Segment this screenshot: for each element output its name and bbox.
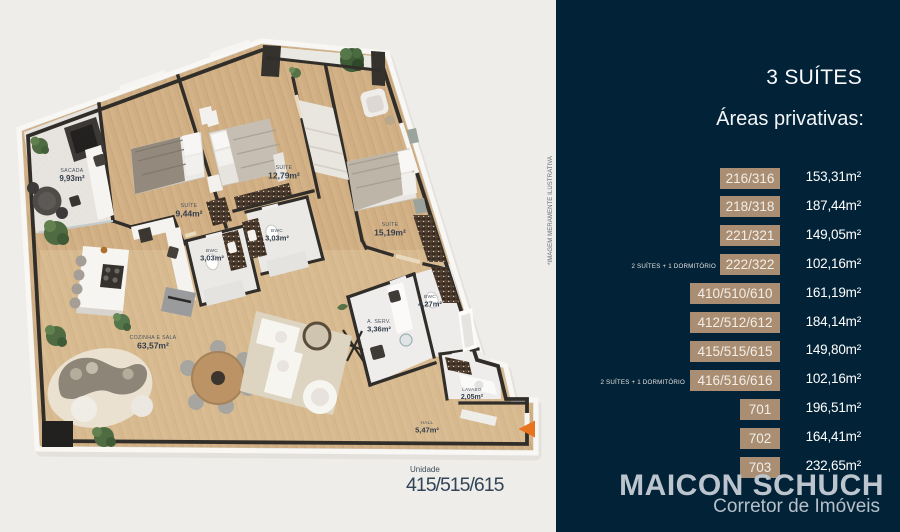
svg-text:3,03m²: 3,03m² bbox=[200, 254, 224, 263]
svg-text:4,27m²: 4,27m² bbox=[418, 300, 442, 309]
svg-text:63,57m²: 63,57m² bbox=[137, 341, 169, 351]
svg-text:3,36m²: 3,36m² bbox=[367, 325, 391, 334]
svg-text:9,93m²: 9,93m² bbox=[59, 174, 85, 183]
svg-text:9,44m²: 9,44m² bbox=[176, 209, 203, 219]
svg-text:LAVABO: LAVABO bbox=[462, 387, 482, 392]
svg-text:HALL: HALL bbox=[421, 420, 434, 425]
svg-text:3,03m²: 3,03m² bbox=[265, 234, 289, 243]
svg-text:12,79m²: 12,79m² bbox=[268, 171, 300, 181]
svg-text:2,05m²: 2,05m² bbox=[461, 394, 484, 401]
svg-text:15,19m²: 15,19m² bbox=[374, 228, 406, 238]
svg-text:5,47m²: 5,47m² bbox=[415, 426, 439, 435]
